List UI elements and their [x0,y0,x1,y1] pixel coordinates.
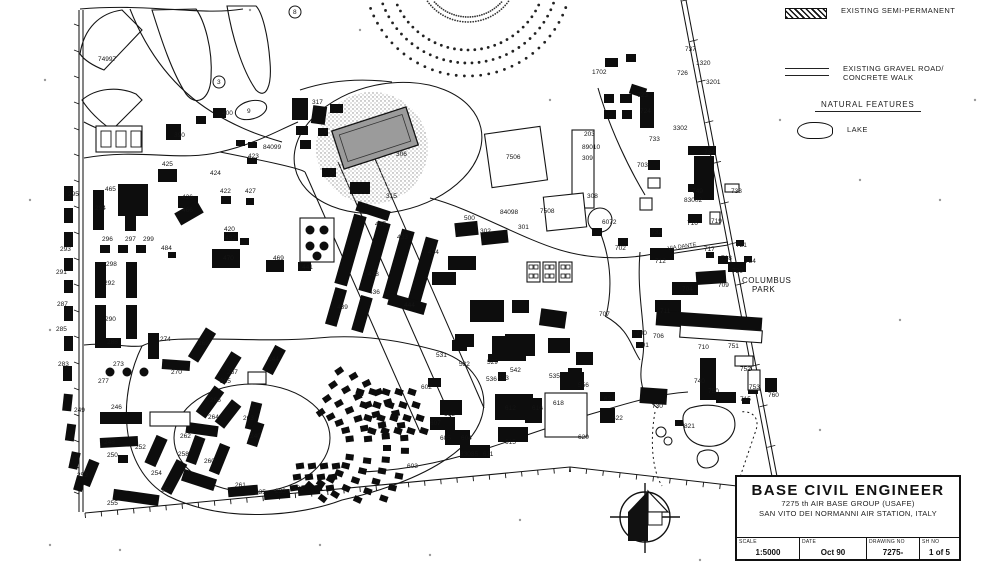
map-label: 203 [584,131,595,138]
map-label: 254 [151,470,162,477]
map-label: 737 [685,46,696,53]
field-sheet-no: SH NO 1 of 5 [919,538,959,559]
map-label: 700 [636,330,647,337]
map-label: 604 [461,435,472,442]
map-label: 532 [459,361,470,368]
map-label: 706 [653,333,664,340]
map-label: 265 [220,378,231,385]
map-label: 84099 [263,144,281,151]
map-label: 422 [220,188,231,195]
map-label: 608 [444,411,455,418]
map-label: 436 [369,289,380,296]
field-drawing-no: DRAWING NO 7275- [866,538,919,559]
map-label: 294 [95,205,106,212]
org-line-1: 7275 th AIR BASE GROUP (USAFE) [737,499,959,509]
map-label: 740 [694,378,705,385]
map-label: 709 [718,282,729,289]
map-label: 702 [615,245,626,252]
map-label: 754 [745,258,756,265]
map-label: 734 [704,149,715,156]
map-label: 253 [77,472,88,479]
map-label: 821 [684,423,695,430]
map-label: 704 [682,286,693,293]
map-label: 283 [58,361,69,368]
hatch-bar-symbol [785,8,827,19]
map-label: 542 [510,367,521,374]
map-label: 233 [275,488,286,495]
map-label: 288 [107,339,118,346]
map-label: 615 [505,439,516,446]
map-label: 74997 [98,56,116,63]
map-label: 264 [208,414,219,421]
map-label: 3201 [706,79,721,86]
map-label: 301 [518,224,529,231]
map-label: 622 [612,415,623,422]
map-label: 730 [652,403,663,410]
map-label: 390 [174,132,185,139]
map-label: 719 [711,218,722,225]
map-label: 256 [161,487,172,494]
map-label: 760 [768,392,779,399]
map-label: 710 [698,344,709,351]
map-label: 302 [480,228,491,235]
map-label: 535 [549,373,560,380]
scanned-site-plan: 7499783940039084099423425424422427426465… [0,0,1000,572]
map-label: 293 [60,246,71,253]
map-label: 3302 [673,125,688,132]
map-label: 295 [68,191,79,198]
map-label: 267 [227,369,238,376]
map-label: 317 [312,99,323,106]
map-label: 618 [553,400,564,407]
map-label: 273 [113,361,124,368]
map-label: 261 [235,482,246,489]
map-label: 277 [98,378,109,385]
map-label: 531 [436,352,447,359]
legend-item-lake: LAKE [797,120,868,139]
map-label: 84098 [500,209,518,216]
map-label: 484 [161,245,172,252]
map-label: 711 [660,308,671,315]
map-label: 751 [728,343,739,350]
drawing-title: BASE CIVIL ENGINEER [737,477,959,499]
map-label: 621 [604,396,615,403]
map-label: 750 [708,388,719,395]
map-label: 707 [599,311,610,318]
map-label: 470 [223,255,234,262]
antenna-dots-layer [369,0,567,77]
map-label: 723 [637,92,648,99]
map-label: 400 [222,110,233,117]
map-label: 612 [505,405,516,412]
map-label: 252 [135,444,146,451]
map-label: 701 [638,342,649,349]
map-label: 434 [428,249,439,256]
map-label: 423 [248,153,259,160]
map-label: 291 [56,269,67,276]
map-label: 720 [732,268,743,275]
map-label: 308 [587,193,598,200]
map-label: 753 [749,384,760,391]
title-block-fields: SCALE 1:5000 DATE Oct 90 DRAWING NO 7275… [737,537,959,559]
map-label: 248 [104,439,115,446]
map-label: 420 [224,226,235,233]
map-label: 733 [649,136,660,143]
map-label: 432 [225,235,236,242]
map-label: 716 [687,220,698,227]
map-label: 299 [143,236,154,243]
legend-item-gravel-road: EXISTING GRAVEL ROAD/ CONCRETE WALK [785,64,944,82]
map-label: 83002 [684,197,702,204]
map-label: 752 [740,366,751,373]
map-label: 292 [104,280,115,287]
map-label: 83085 [460,451,478,458]
map-label: 244 [268,356,279,363]
map-label: 717 [704,246,715,253]
map-label: 269 [198,340,209,347]
map-label: 607 [430,420,441,427]
compass-rose [610,483,680,553]
map-label: 726 [677,70,688,77]
map-label: 556 [578,382,589,389]
field-scale: SCALE 1:5000 [737,538,799,559]
map-label: 3 [217,79,221,86]
map-label: 738 [731,188,742,195]
map-label: 732 [651,229,662,236]
map-label: 444 [404,302,415,309]
map-label: 603 [407,463,418,470]
map-label: 266 [210,397,221,404]
map-label: 718 [721,255,732,262]
map-label: 297 [125,236,136,243]
map-label: 715 [740,396,751,403]
map-label: 255 [107,500,118,507]
map-label: 298 [106,261,117,268]
map-label: 469 [273,255,284,262]
double-line-symbol [785,68,829,76]
map-label: 235 [255,489,266,496]
map-label: 246 [111,404,122,411]
map-label: 605 [440,435,451,442]
map-label: 315 [386,193,397,200]
map-label: 89010 [582,144,600,151]
map-label: 285 [56,326,67,333]
map-label: 602 [421,384,432,391]
map-label: 703 [637,162,648,169]
map-label: 611 [483,451,494,458]
map-label: 262 [180,433,191,440]
map-label: 424 [210,170,221,177]
map-label: 529 [487,359,498,366]
field-date: DATE Oct 90 [799,538,866,559]
area-name-label: PARK [752,285,775,294]
legend-label: LAKE [847,125,868,134]
map-label: 439 [337,304,348,311]
map-label: 309 [582,155,593,162]
map-label: 425 [162,161,173,168]
north-arrow-icon [628,491,648,541]
legend-label: EXISTING SEMI-PERMANENT [841,6,955,15]
map-label: 7506 [506,154,521,161]
map-label: 437 [375,221,386,228]
map-label: 296 [102,236,113,243]
title-block: BASE CIVIL ENGINEER 7275 th AIR BASE GRO… [735,475,961,561]
map-label: 749 [692,188,703,195]
map-label: 260 [204,458,215,465]
map-label: 533 [498,375,509,382]
map-label: 6072 [602,219,617,226]
map-label: 466 [182,207,193,214]
legend-section-natural-features: NATURAL FEATURES [815,100,921,112]
map-label: 536 [486,376,497,383]
map-label: 306 [396,151,407,158]
map-label: 427 [245,188,256,195]
map-label: 465 [105,186,116,193]
area-name-label: COLUMBUS [742,276,791,285]
map-label: 250 [107,452,118,459]
legend-label: EXISTING GRAVEL ROAD/ CONCRETE WALK [843,64,944,82]
legend-item-semi-permanent: EXISTING SEMI-PERMANENT [785,6,955,19]
map-label: 8 [293,9,297,16]
map-label: 249 [74,407,85,414]
map-label: 1320 [696,60,711,67]
map-label: 712 [655,258,666,265]
map-label: 616 [532,405,543,412]
map-label: 7508 [540,208,555,215]
map-label: 433 [397,234,408,241]
map-label: 438 [368,271,379,278]
lake-symbol [797,122,833,139]
map-label: 721 [736,242,747,249]
map-label: 287 [57,301,68,308]
map-label: 441 [302,264,313,271]
map-label: 500 [464,215,475,222]
map-label: 231 [293,485,304,492]
map-label: 274 [160,336,171,343]
map-label: 426 [182,194,193,201]
map-label: 258 [178,451,189,458]
map-label: 9 [247,108,251,115]
map-label: 620 [578,434,589,441]
map-label: 1702 [592,69,607,76]
map-label: 724 [640,108,651,115]
map-label: 263 [243,415,254,422]
org-line-2: SAN VITO DEI NORMANNI AIR STATION, ITALY [737,509,959,519]
map-label: 240 [250,433,261,440]
legend-heading: NATURAL FEATURES [815,100,921,112]
map-label: 290 [105,316,116,323]
map-label: 270 [171,369,182,376]
